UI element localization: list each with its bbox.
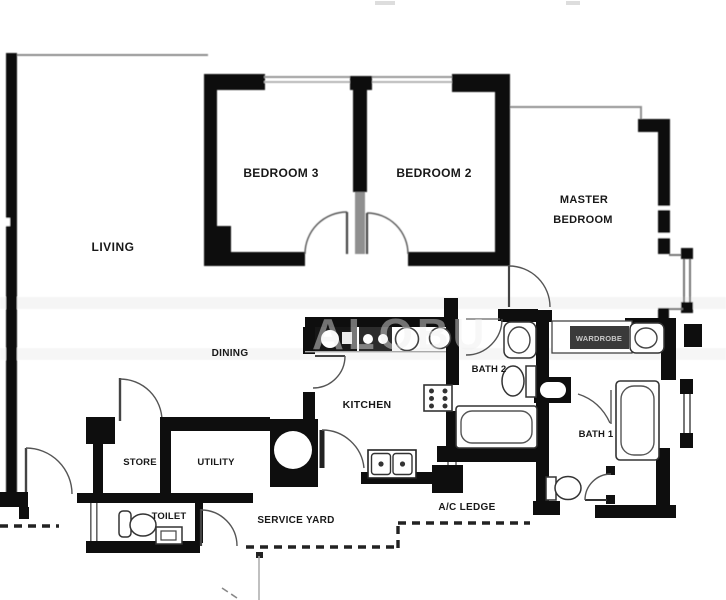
svg-text:ALOBU: ALOBU xyxy=(312,310,488,359)
svg-text:A/C LEDGE: A/C LEDGE xyxy=(438,502,495,513)
svg-text:BATH 1: BATH 1 xyxy=(579,429,614,440)
svg-text:SERVICE YARD: SERVICE YARD xyxy=(257,515,334,526)
svg-text:BATH 2: BATH 2 xyxy=(472,364,507,375)
svg-text:UTILITY: UTILITY xyxy=(197,457,235,468)
svg-text:LIVING: LIVING xyxy=(91,240,134,254)
svg-text:STORE: STORE xyxy=(123,457,157,468)
svg-text:WARDROBE: WARDROBE xyxy=(576,334,622,343)
svg-text:MASTER: MASTER xyxy=(560,194,608,206)
svg-text:BEDROOM 3: BEDROOM 3 xyxy=(243,166,318,180)
svg-text:DINING: DINING xyxy=(212,348,249,359)
svg-text:BEDROOM: BEDROOM xyxy=(553,214,613,226)
svg-text:KITCHEN: KITCHEN xyxy=(343,399,392,411)
svg-text:TOILET: TOILET xyxy=(152,511,187,522)
svg-text:BEDROOM 2: BEDROOM 2 xyxy=(396,166,471,180)
